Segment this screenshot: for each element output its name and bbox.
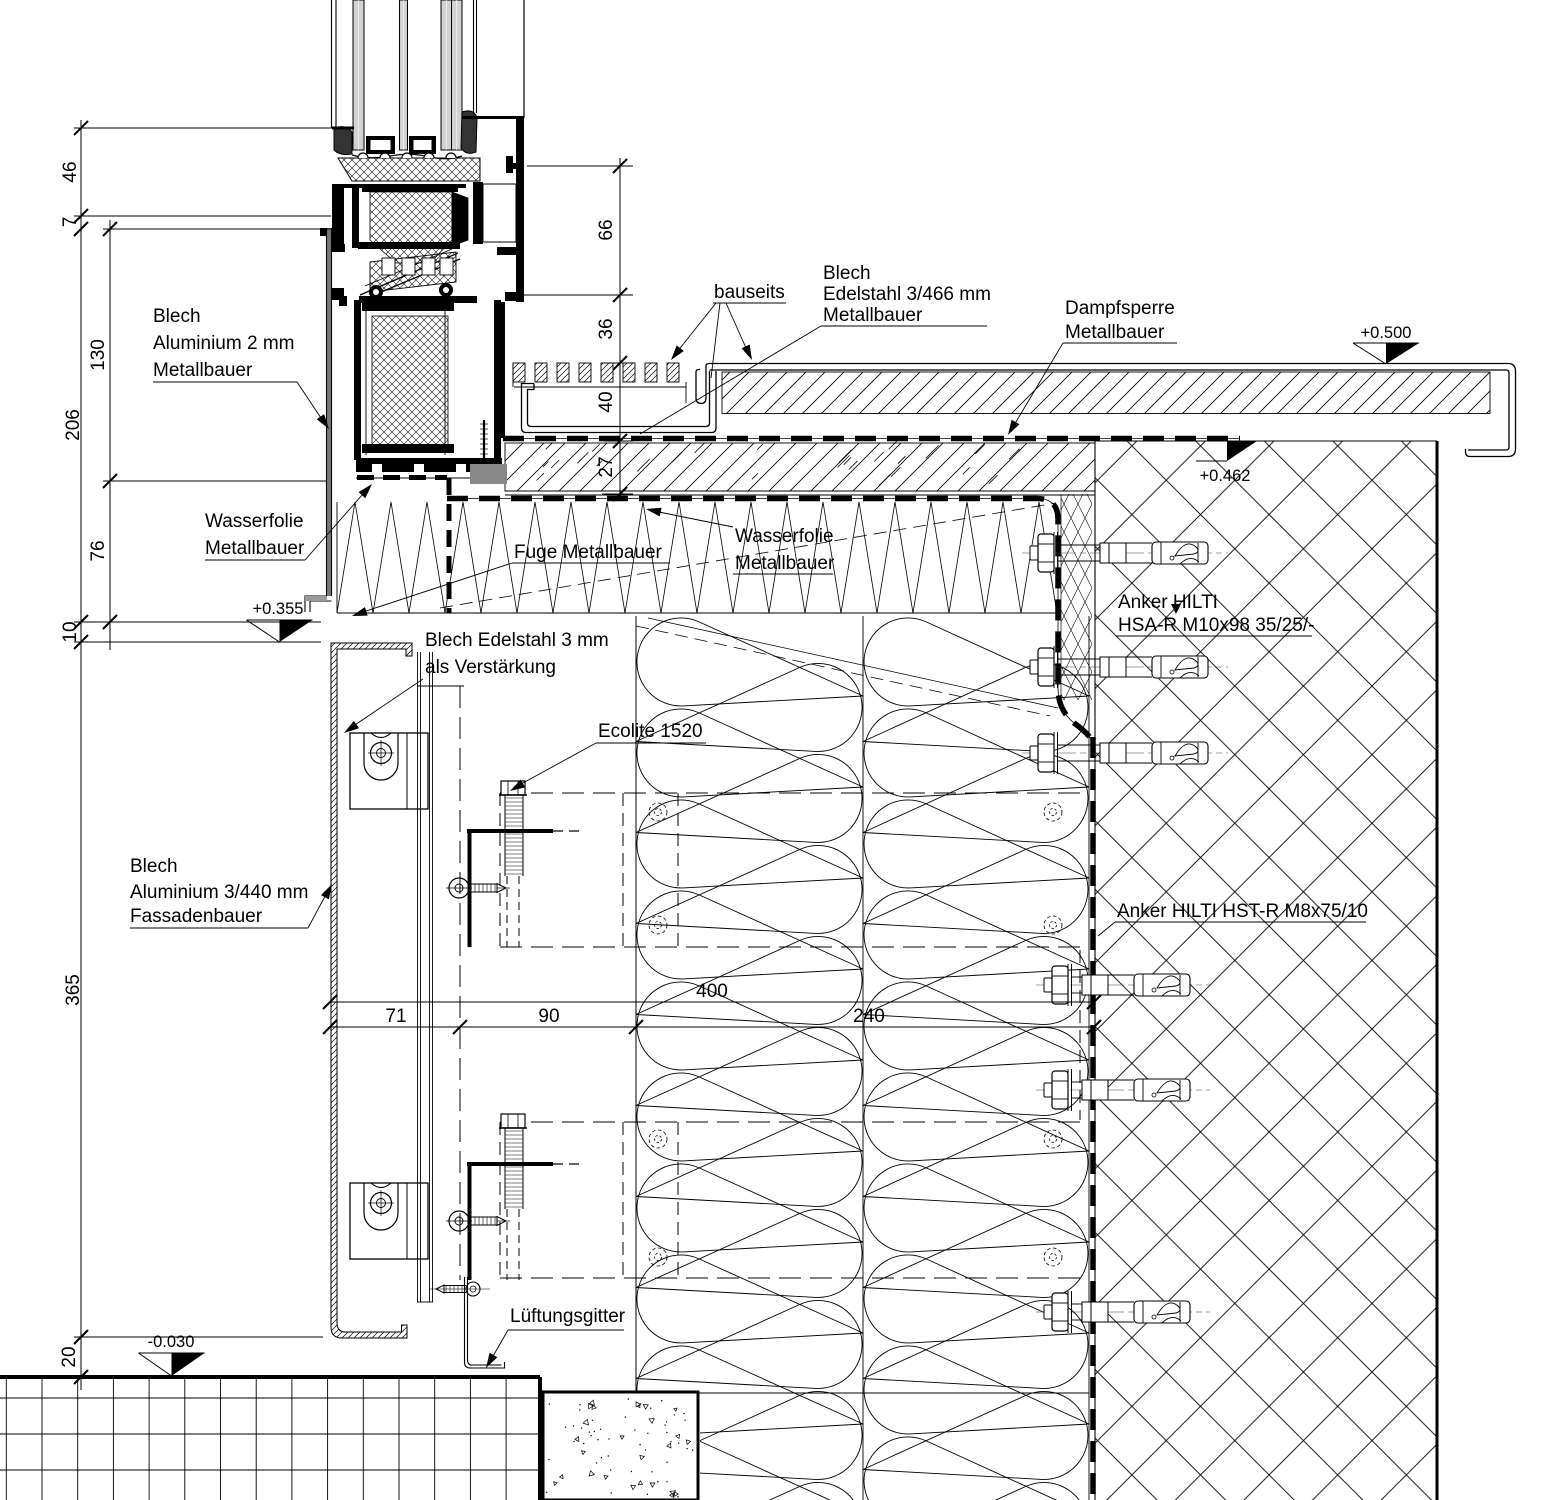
svg-text:40: 40 xyxy=(596,391,617,412)
svg-text:Fassadenbauer: Fassadenbauer xyxy=(130,906,263,927)
svg-text:Wasserfolie: Wasserfolie xyxy=(205,511,304,532)
svg-text:HSA-R M10x98 35/25/-: HSA-R M10x98 35/25/- xyxy=(1118,615,1314,636)
svg-text:als Verstärkung: als Verstärkung xyxy=(425,657,556,678)
svg-text:Dampfsperre: Dampfsperre xyxy=(1065,298,1175,319)
svg-text:-0.030: -0.030 xyxy=(148,1333,195,1351)
svg-text:36: 36 xyxy=(596,318,617,339)
svg-text:365: 365 xyxy=(63,974,84,1006)
svg-text:46: 46 xyxy=(60,161,81,182)
svg-text:90: 90 xyxy=(538,1006,559,1027)
svg-text:10: 10 xyxy=(60,621,81,642)
svg-text:240: 240 xyxy=(853,1006,885,1027)
svg-text:Ecolite 1520: Ecolite 1520 xyxy=(598,721,703,742)
svg-text:206: 206 xyxy=(63,409,84,441)
svg-text:Blech: Blech xyxy=(153,306,201,327)
svg-text:Wasserfolie: Wasserfolie xyxy=(735,526,834,547)
svg-text:Lüftungsgitter: Lüftungsgitter xyxy=(510,1306,626,1327)
svg-text:Blech Edelstahl 3 mm: Blech Edelstahl 3 mm xyxy=(425,630,609,651)
svg-text:Metallbauer: Metallbauer xyxy=(153,360,253,381)
svg-text:76: 76 xyxy=(88,540,109,561)
svg-text:Metallbauer: Metallbauer xyxy=(735,553,835,574)
svg-text:Anker HILTI: Anker HILTI xyxy=(1118,592,1218,613)
svg-text:Metallbauer: Metallbauer xyxy=(205,538,305,559)
svg-text:66: 66 xyxy=(596,219,617,240)
svg-text:Aluminium 2 mm: Aluminium 2 mm xyxy=(153,333,294,354)
svg-text:27: 27 xyxy=(596,456,617,477)
svg-text:+0.462: +0.462 xyxy=(1200,467,1251,485)
svg-text:Aluminium 3/440 mm: Aluminium 3/440 mm xyxy=(130,882,308,903)
svg-text:+0.355: +0.355 xyxy=(253,600,304,618)
svg-text:Fuge Metallbauer: Fuge Metallbauer xyxy=(514,542,663,563)
svg-text:Anker HILTI HST-R M8x75/10: Anker HILTI HST-R M8x75/10 xyxy=(1117,901,1368,922)
svg-text:20: 20 xyxy=(59,1346,80,1367)
svg-text:7: 7 xyxy=(60,217,81,228)
svg-text:Blech: Blech xyxy=(823,263,871,284)
svg-text:+0.500: +0.500 xyxy=(1361,324,1412,342)
svg-text:71: 71 xyxy=(385,1006,406,1027)
svg-text:Metallbauer: Metallbauer xyxy=(823,305,923,326)
svg-text:130: 130 xyxy=(88,339,109,371)
svg-text:Blech: Blech xyxy=(130,856,178,877)
svg-text:bauseits: bauseits xyxy=(714,282,785,303)
svg-text:Edelstahl 3/466 mm: Edelstahl 3/466 mm xyxy=(823,284,991,305)
svg-text:400: 400 xyxy=(696,981,728,1002)
svg-text:Metallbauer: Metallbauer xyxy=(1065,322,1165,343)
